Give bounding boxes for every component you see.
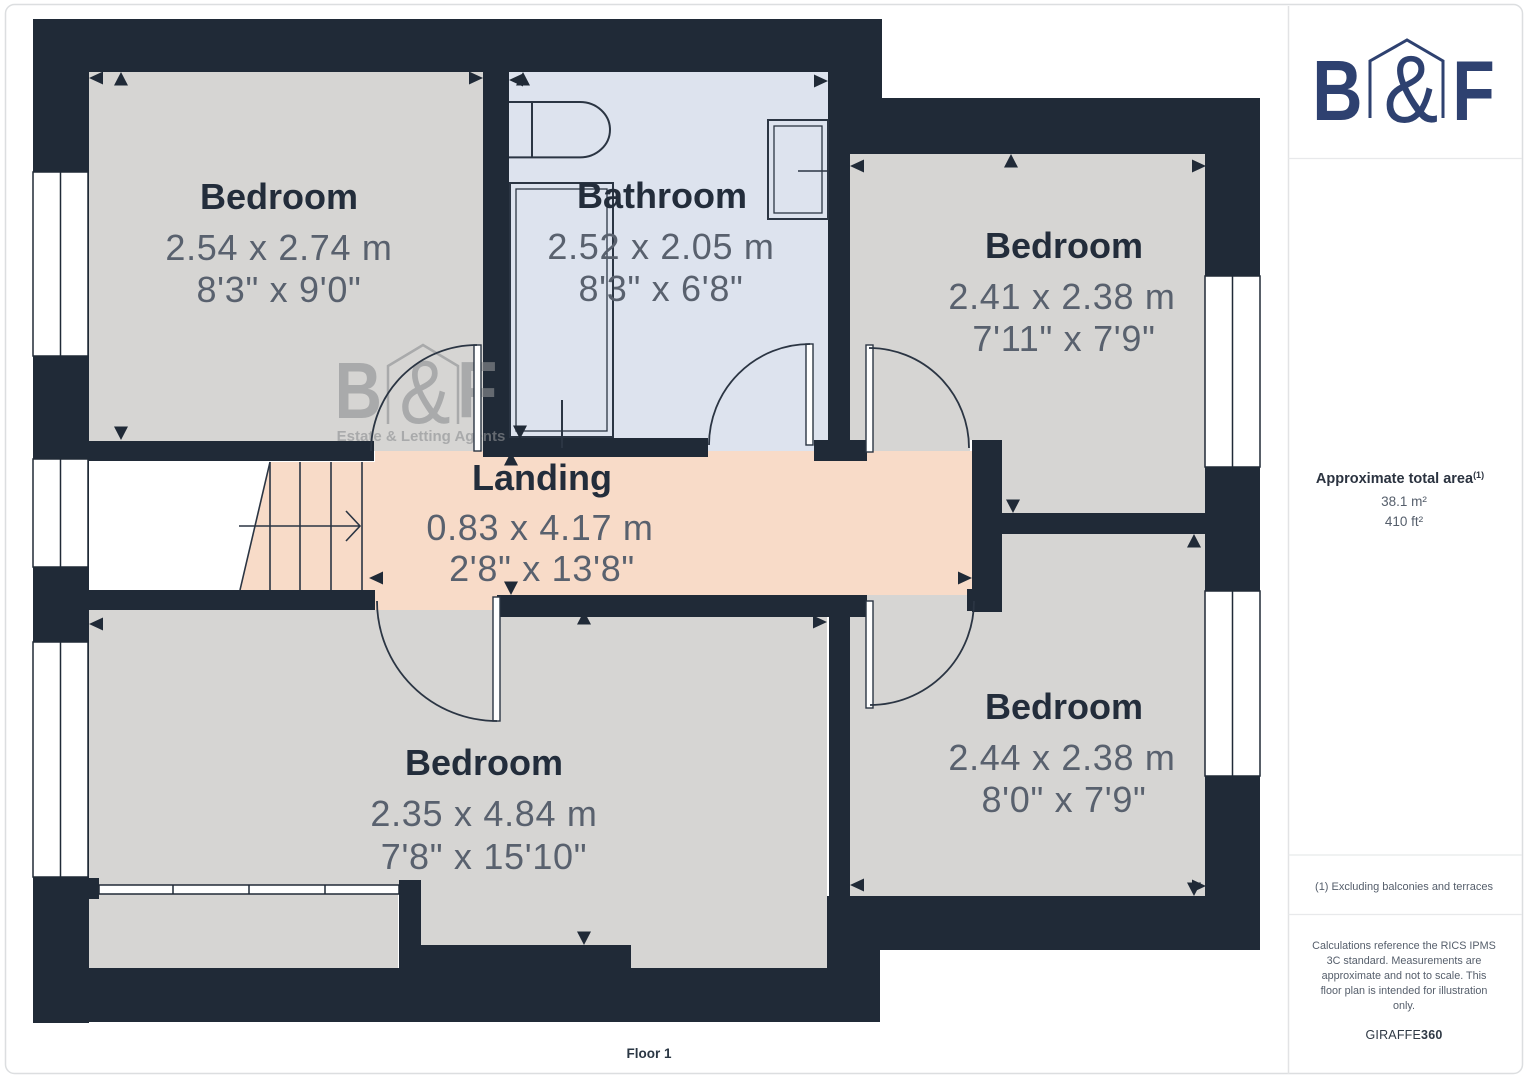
svg-text:Landing: Landing xyxy=(472,457,612,498)
svg-text:2'8" x 13'8": 2'8" x 13'8" xyxy=(449,548,635,589)
svg-text:only.: only. xyxy=(1393,1000,1415,1012)
svg-text:Bedroom: Bedroom xyxy=(985,225,1143,266)
svg-text:(1) Excluding balconies and te: (1) Excluding balconies and terraces xyxy=(1315,881,1493,893)
svg-text:8'3" x 9'0": 8'3" x 9'0" xyxy=(196,269,361,310)
svg-text:B: B xyxy=(1312,45,1362,139)
svg-text:3C standard. Measurements are: 3C standard. Measurements are xyxy=(1327,955,1482,967)
svg-text:2.41 x 2.38 m: 2.41 x 2.38 m xyxy=(948,276,1175,317)
svg-text:F: F xyxy=(1452,45,1495,139)
svg-text:7'11" x 7'9": 7'11" x 7'9" xyxy=(972,318,1155,359)
svg-text:Calculations reference the RIC: Calculations reference the RICS IPMS xyxy=(1312,940,1496,952)
svg-text:Bedroom: Bedroom xyxy=(200,176,358,217)
svg-text:floor plan is intended for ill: floor plan is intended for illustration xyxy=(1321,985,1488,997)
svg-text:2.52 x 2.05 m: 2.52 x 2.05 m xyxy=(547,226,774,267)
svg-text:Bedroom: Bedroom xyxy=(405,742,563,783)
svg-text:7'8" x 15'10": 7'8" x 15'10" xyxy=(381,836,588,877)
svg-text:38.1 m²: 38.1 m² xyxy=(1381,494,1427,509)
svg-text:Bedroom: Bedroom xyxy=(985,686,1143,727)
svg-text:410 ft²: 410 ft² xyxy=(1385,514,1424,529)
svg-text:Approximate total area(1): Approximate total area(1) xyxy=(1316,470,1484,487)
svg-text:Bathroom: Bathroom xyxy=(577,175,747,216)
svg-text:GIRAFFE360: GIRAFFE360 xyxy=(1365,1028,1442,1042)
svg-text:Floor 1: Floor 1 xyxy=(626,1046,671,1061)
svg-text:2.44 x 2.38 m: 2.44 x 2.38 m xyxy=(948,737,1175,778)
svg-text:2.54 x 2.74 m: 2.54 x 2.74 m xyxy=(165,227,392,268)
svg-text:approximate and not to scale.: approximate and not to scale. This xyxy=(1322,970,1487,982)
svg-text:&: & xyxy=(1384,35,1438,143)
svg-text:0.83 x 4.17 m: 0.83 x 4.17 m xyxy=(426,507,653,548)
svg-text:2.35 x 4.84 m: 2.35 x 4.84 m xyxy=(370,793,597,834)
svg-text:8'3" x 6'8": 8'3" x 6'8" xyxy=(578,268,743,309)
svg-text:8'0" x 7'9": 8'0" x 7'9" xyxy=(981,779,1146,820)
